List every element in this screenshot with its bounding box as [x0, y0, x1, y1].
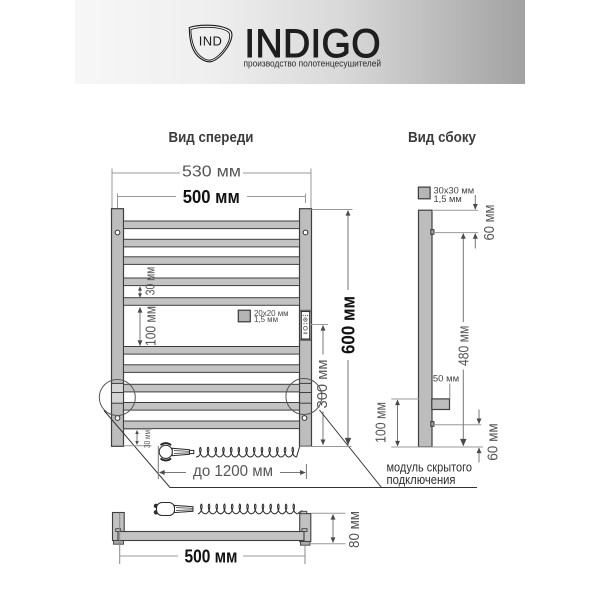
svg-text:100 мм: 100 мм — [372, 402, 389, 443]
svg-text:100 мм: 100 мм — [142, 306, 159, 346]
svg-text:500 мм: 500 мм — [185, 546, 238, 566]
svg-text:480 мм: 480 мм — [455, 326, 472, 367]
svg-text:50 мм: 50 мм — [433, 374, 459, 385]
svg-text:80 мм: 80 мм — [346, 511, 363, 548]
svg-text:1,5 мм: 1,5 мм — [254, 315, 278, 324]
svg-text:производство полотенцесушителе: производство полотенцесушителей — [244, 58, 382, 69]
svg-text:Вид сбоку: Вид сбоку — [408, 129, 477, 146]
svg-text:IND: IND — [199, 33, 223, 48]
svg-text:подключения: подключения — [387, 473, 456, 487]
svg-text:600 мм: 600 мм — [338, 296, 358, 354]
svg-text:1,5 мм: 1,5 мм — [434, 194, 462, 204]
svg-text:530 мм: 530 мм — [182, 164, 241, 181]
svg-text:30 мм: 30 мм — [143, 267, 158, 296]
svg-text:60 мм: 60 мм — [481, 205, 498, 241]
svg-text:500 мм: 500 мм — [183, 187, 240, 207]
svg-text:до 1200 мм: до 1200 мм — [193, 463, 273, 480]
svg-text:Вид спереди: Вид спереди — [169, 129, 254, 146]
svg-text:60 мм: 60 мм — [484, 423, 501, 461]
svg-text:30 мм: 30 мм — [142, 430, 152, 448]
